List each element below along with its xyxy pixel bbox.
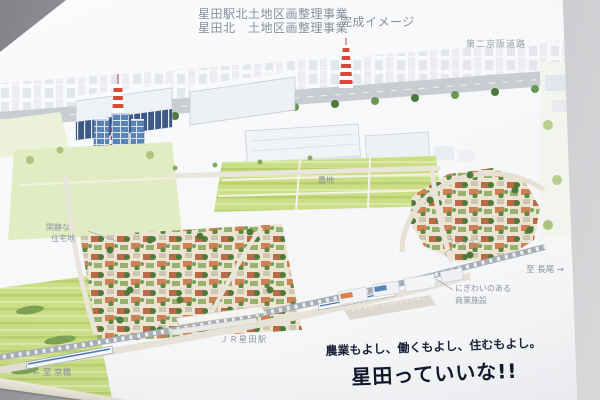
label-highway: 第二京阪道路	[466, 40, 526, 50]
label-farmland: 農地	[318, 176, 334, 185]
title-line-1: 星田駅北土地区画整理事業	[198, 7, 348, 21]
title-line-2: 星田北 土地区画整理事業	[198, 21, 348, 35]
label-quiet-residential-1: 閑静な	[46, 223, 70, 232]
photo-of-signboard: 星田駅北土地区画整理事業 星田北 土地区画整理事業 完成イメージ 第二京阪道路 …	[0, 0, 600, 400]
label-commercial-1: にぎわいのある	[455, 284, 511, 293]
label-apartment: マンション	[447, 238, 482, 246]
label-to-nagao: 至 長尾 →	[526, 266, 564, 276]
slogan-block: 農業もよし、働くもよし、住むもよし。 星田っていいな!!	[299, 333, 569, 392]
label-quiet-residential-2: 住宅地	[51, 234, 75, 243]
label-to-kyobashi: ← 至 京橋	[33, 369, 71, 379]
label-commercial-2: 商業施設	[455, 296, 487, 305]
label-jr-hoshida-station: ＪＲ星田駅	[220, 335, 268, 344]
quiet-residential-field	[8, 142, 182, 240]
signboard: 星田駅北土地区画整理事業 星田北 土地区画整理事業 完成イメージ 第二京阪道路 …	[0, 0, 600, 400]
board-title: 星田駅北土地区画整理事業 星田北 土地区画整理事業	[198, 7, 348, 35]
title-suffix: 完成イメージ	[340, 13, 415, 30]
